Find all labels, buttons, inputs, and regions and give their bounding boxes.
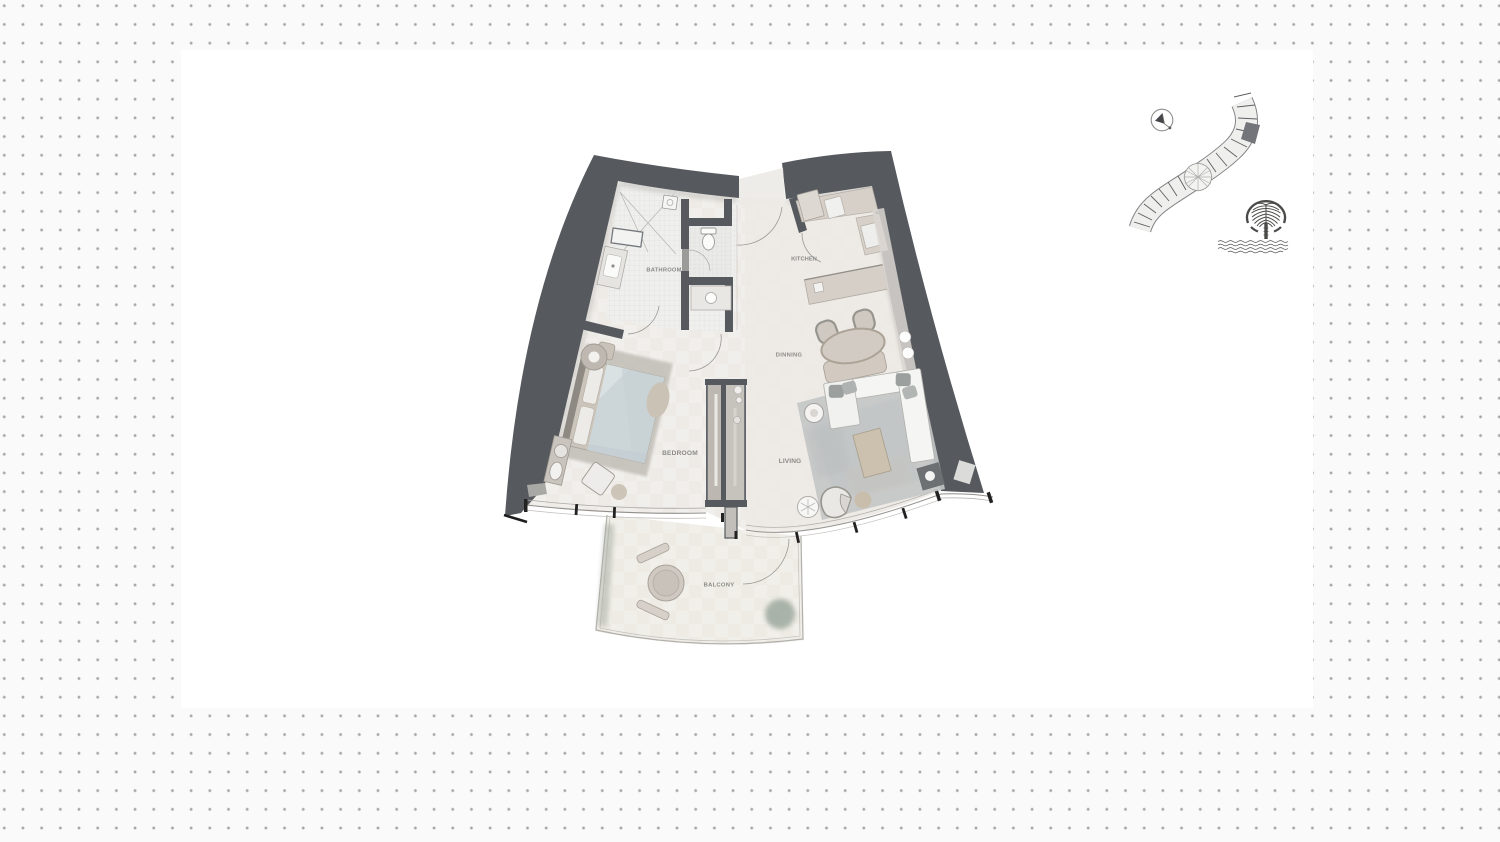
svg-text:KITCHEN: KITCHEN xyxy=(791,257,817,263)
svg-text:BEDROOM: BEDROOM xyxy=(662,450,698,457)
svg-text:DINNING: DINNING xyxy=(776,353,803,359)
svg-text:BALCONY: BALCONY xyxy=(704,583,735,589)
svg-text:LIVING: LIVING xyxy=(779,458,802,465)
svg-text:BATHROOM: BATHROOM xyxy=(646,268,681,274)
